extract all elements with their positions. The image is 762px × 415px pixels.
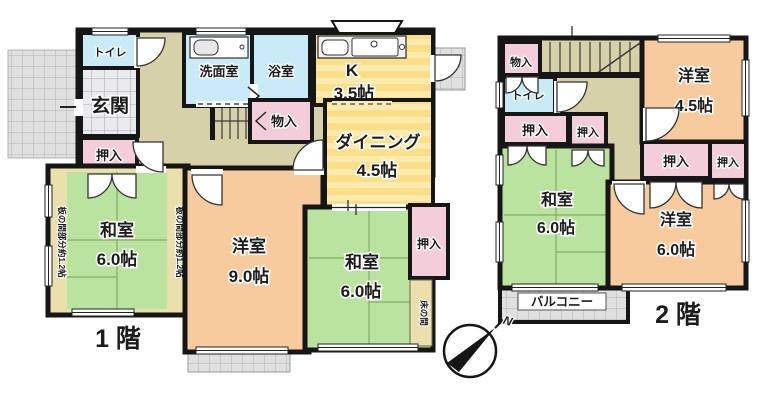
compass-icon: N: [444, 313, 514, 377]
yoshitsu9-size-label: 9.0帖: [229, 266, 270, 286]
toilet-1f-label: トイレ: [94, 46, 127, 59]
room-closet-d-2f: 押入: [710, 142, 746, 180]
washitsu-center-name-label: 和室: [345, 252, 379, 272]
room-toilet-1f: トイレ: [81, 33, 138, 68]
south-porch-hatch: [188, 352, 290, 372]
room-closet-c-2f: 押入: [642, 142, 710, 178]
kitchen-bay-window: [332, 21, 402, 33]
yoshitsu6-size-label: 6.0帖: [657, 240, 695, 259]
room-washroom: 洗面室: [184, 33, 254, 107]
itanoma-left-label: 板の間部分約1.2帖: [57, 206, 67, 278]
washitsu-center-size-label: 6.0帖: [341, 281, 382, 301]
toilet-2f-label: トイレ: [512, 89, 545, 102]
closet-right-label: 押入: [417, 236, 441, 251]
tokonoma-alcove: 床の間: [410, 280, 432, 346]
closet-a-label: 押入: [522, 123, 548, 138]
bath-label: 浴室: [268, 64, 294, 79]
closet-b-label: 押入: [577, 125, 599, 139]
room-washitsu-2f: 和室 6.0帖: [500, 146, 612, 288]
dining-size-label: 4.5帖: [357, 160, 398, 180]
floor-plan-svg: トイレ 玄関 洗面室 浴室: [0, 0, 762, 415]
kitchen-name-label: K: [346, 61, 359, 80]
floor2-label: 2 階: [655, 301, 701, 329]
yoshitsu45-name-label: 洋室: [678, 66, 710, 85]
room-dining: ダイニング 4.5帖: [325, 100, 433, 211]
washroom-label: 洗面室: [199, 64, 238, 79]
floor1-plan: トイレ 玄関 洗面室 浴室: [8, 21, 465, 372]
floor-plan-canvas: トイレ 玄関 洗面室 浴室: [0, 0, 762, 415]
floor1-label: 1 階: [95, 325, 141, 353]
genkan-label: 玄関: [91, 94, 129, 117]
room-storage-1f: 物入: [250, 100, 312, 142]
washitsu-left-size-label: 6.0帖: [97, 249, 138, 269]
yoshitsu45-size-label: 4.5帖: [675, 96, 713, 115]
room-closet-a-2f: 押入: [503, 114, 568, 144]
room-kitchen: K 3.5帖: [314, 21, 433, 105]
washitsu-left-name-label: 和室: [100, 220, 134, 240]
tokonoma-label: 床の間: [419, 300, 429, 326]
yoshitsu6-name-label: 洋室: [660, 210, 692, 229]
approach-hatch: [8, 50, 78, 158]
washitsu-2f-name-label: 和室: [541, 190, 573, 209]
room-bath: 浴室: [248, 33, 310, 106]
balcony-label: バルコニー: [531, 295, 593, 309]
storage-2f-label: 物入: [510, 55, 532, 69]
closet-left-label: 押入: [96, 148, 122, 163]
storage-1f-label: 物入: [271, 114, 297, 129]
closet-d-label: 押入: [717, 155, 739, 169]
room-closet-right-1f: 押入: [410, 205, 448, 278]
room-genkan: 玄関: [81, 68, 138, 136]
dining-name-label: ダイニング: [336, 132, 421, 152]
room-storage-2f: 物入: [503, 42, 540, 75]
floor2-plan: バルコニー 物入 トイレ 押入 押入: [496, 26, 749, 329]
closet-c-label: 押入: [663, 154, 689, 169]
room-closet-b-2f: 押入: [570, 114, 606, 148]
washitsu-2f-size-label: 6.0帖: [537, 218, 575, 237]
yoshitsu9-name-label: 洋室: [232, 236, 266, 256]
